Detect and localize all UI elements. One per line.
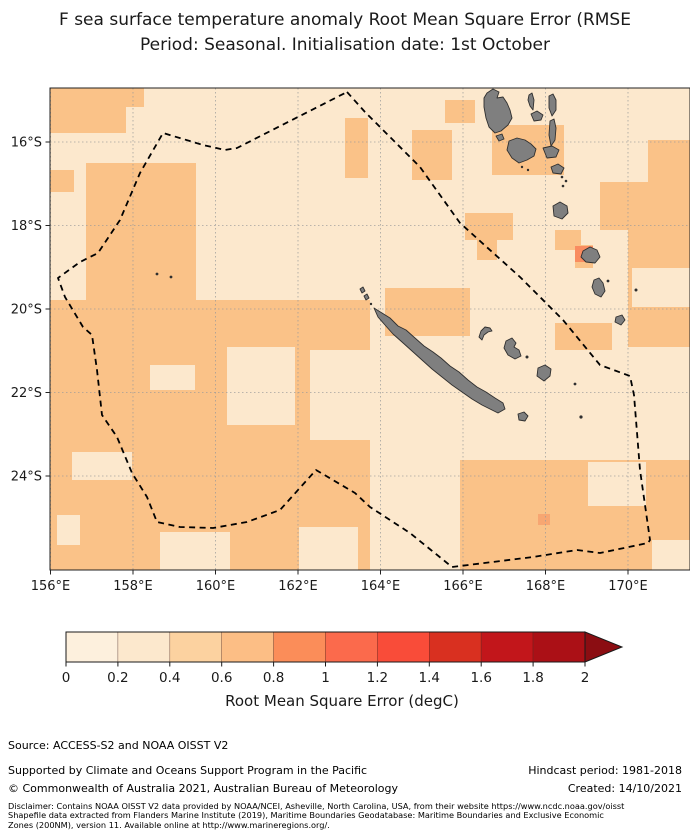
- y-axis-tick-label: 24°S: [11, 470, 42, 485]
- rmse-cell-high: [538, 514, 550, 525]
- islet-dot: [156, 273, 159, 276]
- x-axis-tick-label: 156°E: [31, 579, 71, 594]
- islet-dot: [607, 280, 610, 283]
- colorbar-tick-label: 0.8: [263, 670, 284, 686]
- islet-dot: [574, 383, 577, 386]
- colorbar-tick-label: 1.6: [470, 670, 491, 686]
- x-axis-tick-label: 160°E: [196, 579, 236, 594]
- islet-dot: [635, 289, 638, 292]
- x-axis-tick-label: 170°E: [608, 579, 648, 594]
- colorbar-segment: [274, 632, 326, 662]
- rmse-patch-medium: [648, 140, 690, 232]
- colorbar-tick-label: 0.6: [211, 670, 232, 686]
- rmse-patch-medium: [345, 118, 368, 178]
- x-axis-tick-label: 166°E: [443, 579, 483, 594]
- hindcast-period-note: Hindcast period: 1981-2018: [528, 764, 682, 777]
- rmse-patch-medium: [445, 100, 475, 123]
- rmse-patch-medium: [465, 213, 513, 240]
- islet-dot: [526, 356, 529, 359]
- rmse-patch-medium: [50, 170, 74, 192]
- colorbar-segment: [66, 632, 118, 662]
- colorbar-tick-label: 0.4: [159, 670, 180, 686]
- colorbar-segment: [481, 632, 533, 662]
- x-axis-tick-label: 158°E: [113, 579, 153, 594]
- colorbar-tick-label: 1.2: [367, 670, 388, 686]
- colorbar: 00.20.40.60.811.21.41.61.82Root Mean Squ…: [62, 632, 622, 710]
- y-axis-tick-label: 22°S: [11, 386, 42, 401]
- rmse-patch-light: [310, 350, 370, 440]
- rmse-patch-light: [588, 462, 646, 506]
- map-layer: [50, 88, 690, 570]
- rmse-patch-medium: [412, 130, 452, 180]
- figure-title-line1: F sea surface temperature anomaly Root M…: [0, 8, 690, 33]
- figure-title: F sea surface temperature anomaly Root M…: [0, 8, 690, 58]
- islet-dot: [527, 169, 529, 171]
- supported-by-note: Supported by Climate and Oceans Support …: [8, 764, 367, 777]
- rmse-patch-medium: [600, 182, 648, 230]
- rmse-patch-light: [150, 365, 195, 390]
- figure-page: { "title": { "line1": "F sea surface tem…: [0, 0, 690, 839]
- islet-dot: [370, 303, 372, 305]
- x-axis-tick-label: 162°E: [278, 579, 318, 594]
- colorbar-segment: [429, 632, 481, 662]
- islet-dot: [579, 415, 582, 418]
- y-axis-tick-label: 20°S: [11, 303, 42, 318]
- source-note: Source: ACCESS-S2 and NOAA OISST V2: [8, 739, 228, 752]
- colorbar-tick-label: 1: [321, 670, 330, 686]
- colorbar-segment: [118, 632, 170, 662]
- islet-dot: [521, 166, 523, 168]
- figure-title-line2: Period: Seasonal. Initialisation date: 1…: [0, 33, 690, 58]
- colorbar-segment: [377, 632, 429, 662]
- rmse-patch-light: [299, 527, 358, 570]
- rmse-patch-medium: [126, 88, 144, 107]
- colorbar-segment: [222, 632, 274, 662]
- disclaimer-text: Disclaimer: Contains NOAA OISST V2 data …: [8, 802, 690, 830]
- rmse-patch-light: [632, 268, 690, 307]
- colorbar-tick-label: 0: [62, 670, 71, 686]
- islet-dot: [562, 185, 565, 188]
- y-axis-tick-label: 16°S: [11, 136, 42, 151]
- figure-canvas: 156°E158°E160°E162°E164°E166°E168°E170°E…: [0, 0, 690, 730]
- y-axis-tick-label: 18°S: [11, 219, 42, 234]
- rmse-patch-light: [652, 540, 690, 570]
- created-date-note: Created: 14/10/2021: [568, 782, 682, 795]
- copyright-note: © Commonwealth of Australia 2021, Austra…: [8, 782, 398, 795]
- islet-dot: [561, 176, 564, 179]
- colorbar-tick-label: 1.8: [522, 670, 543, 686]
- rmse-patch-light: [57, 515, 80, 545]
- rmse-patch-medium: [477, 240, 497, 260]
- disclaimer-line: Zones (200NM), version 11. Available onl…: [8, 821, 690, 830]
- colorbar-tick-label: 0.2: [107, 670, 128, 686]
- x-axis-tick-label: 168°E: [526, 579, 566, 594]
- islet-dot: [170, 276, 173, 279]
- colorbar-over-arrow: [585, 632, 622, 662]
- rmse-patch-medium: [50, 88, 126, 133]
- colorbar-axis-label: Root Mean Square Error (degC): [225, 692, 459, 710]
- rmse-patch-light: [227, 347, 295, 425]
- colorbar-segment: [326, 632, 378, 662]
- colorbar-segment: [533, 632, 585, 662]
- colorbar-tick-label: 1.4: [419, 670, 440, 686]
- colorbar-segment: [170, 632, 222, 662]
- colorbar-tick-label: 2: [581, 670, 590, 686]
- x-axis-tick-label: 164°E: [361, 579, 401, 594]
- rmse-patch-light: [160, 532, 230, 570]
- islet-dot: [565, 180, 568, 183]
- rmse-patch-medium: [86, 163, 196, 310]
